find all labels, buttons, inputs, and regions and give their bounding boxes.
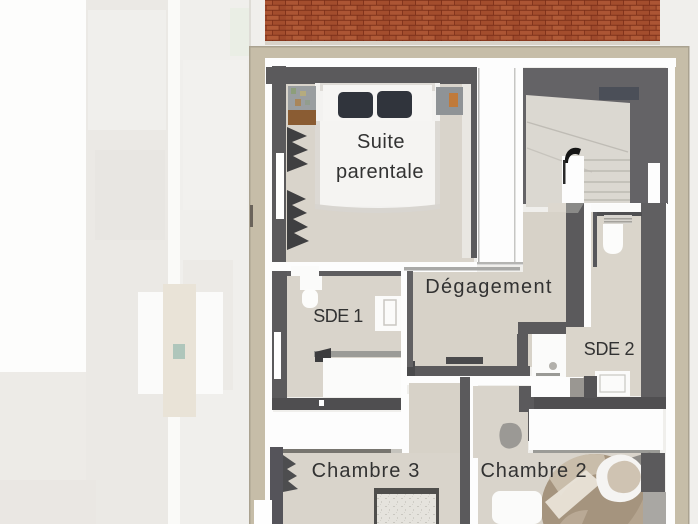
svg-text:SDE 2: SDE 2	[584, 339, 635, 359]
svg-text:Chambre 2: Chambre 2	[480, 460, 587, 482]
svg-text:SDE 1: SDE 1	[313, 306, 363, 326]
svg-text:Suite: Suite	[357, 131, 405, 153]
svg-text:parentale: parentale	[336, 161, 424, 183]
svg-text:Dégagement: Dégagement	[425, 276, 553, 298]
svg-text:Chambre 3: Chambre 3	[312, 460, 421, 482]
